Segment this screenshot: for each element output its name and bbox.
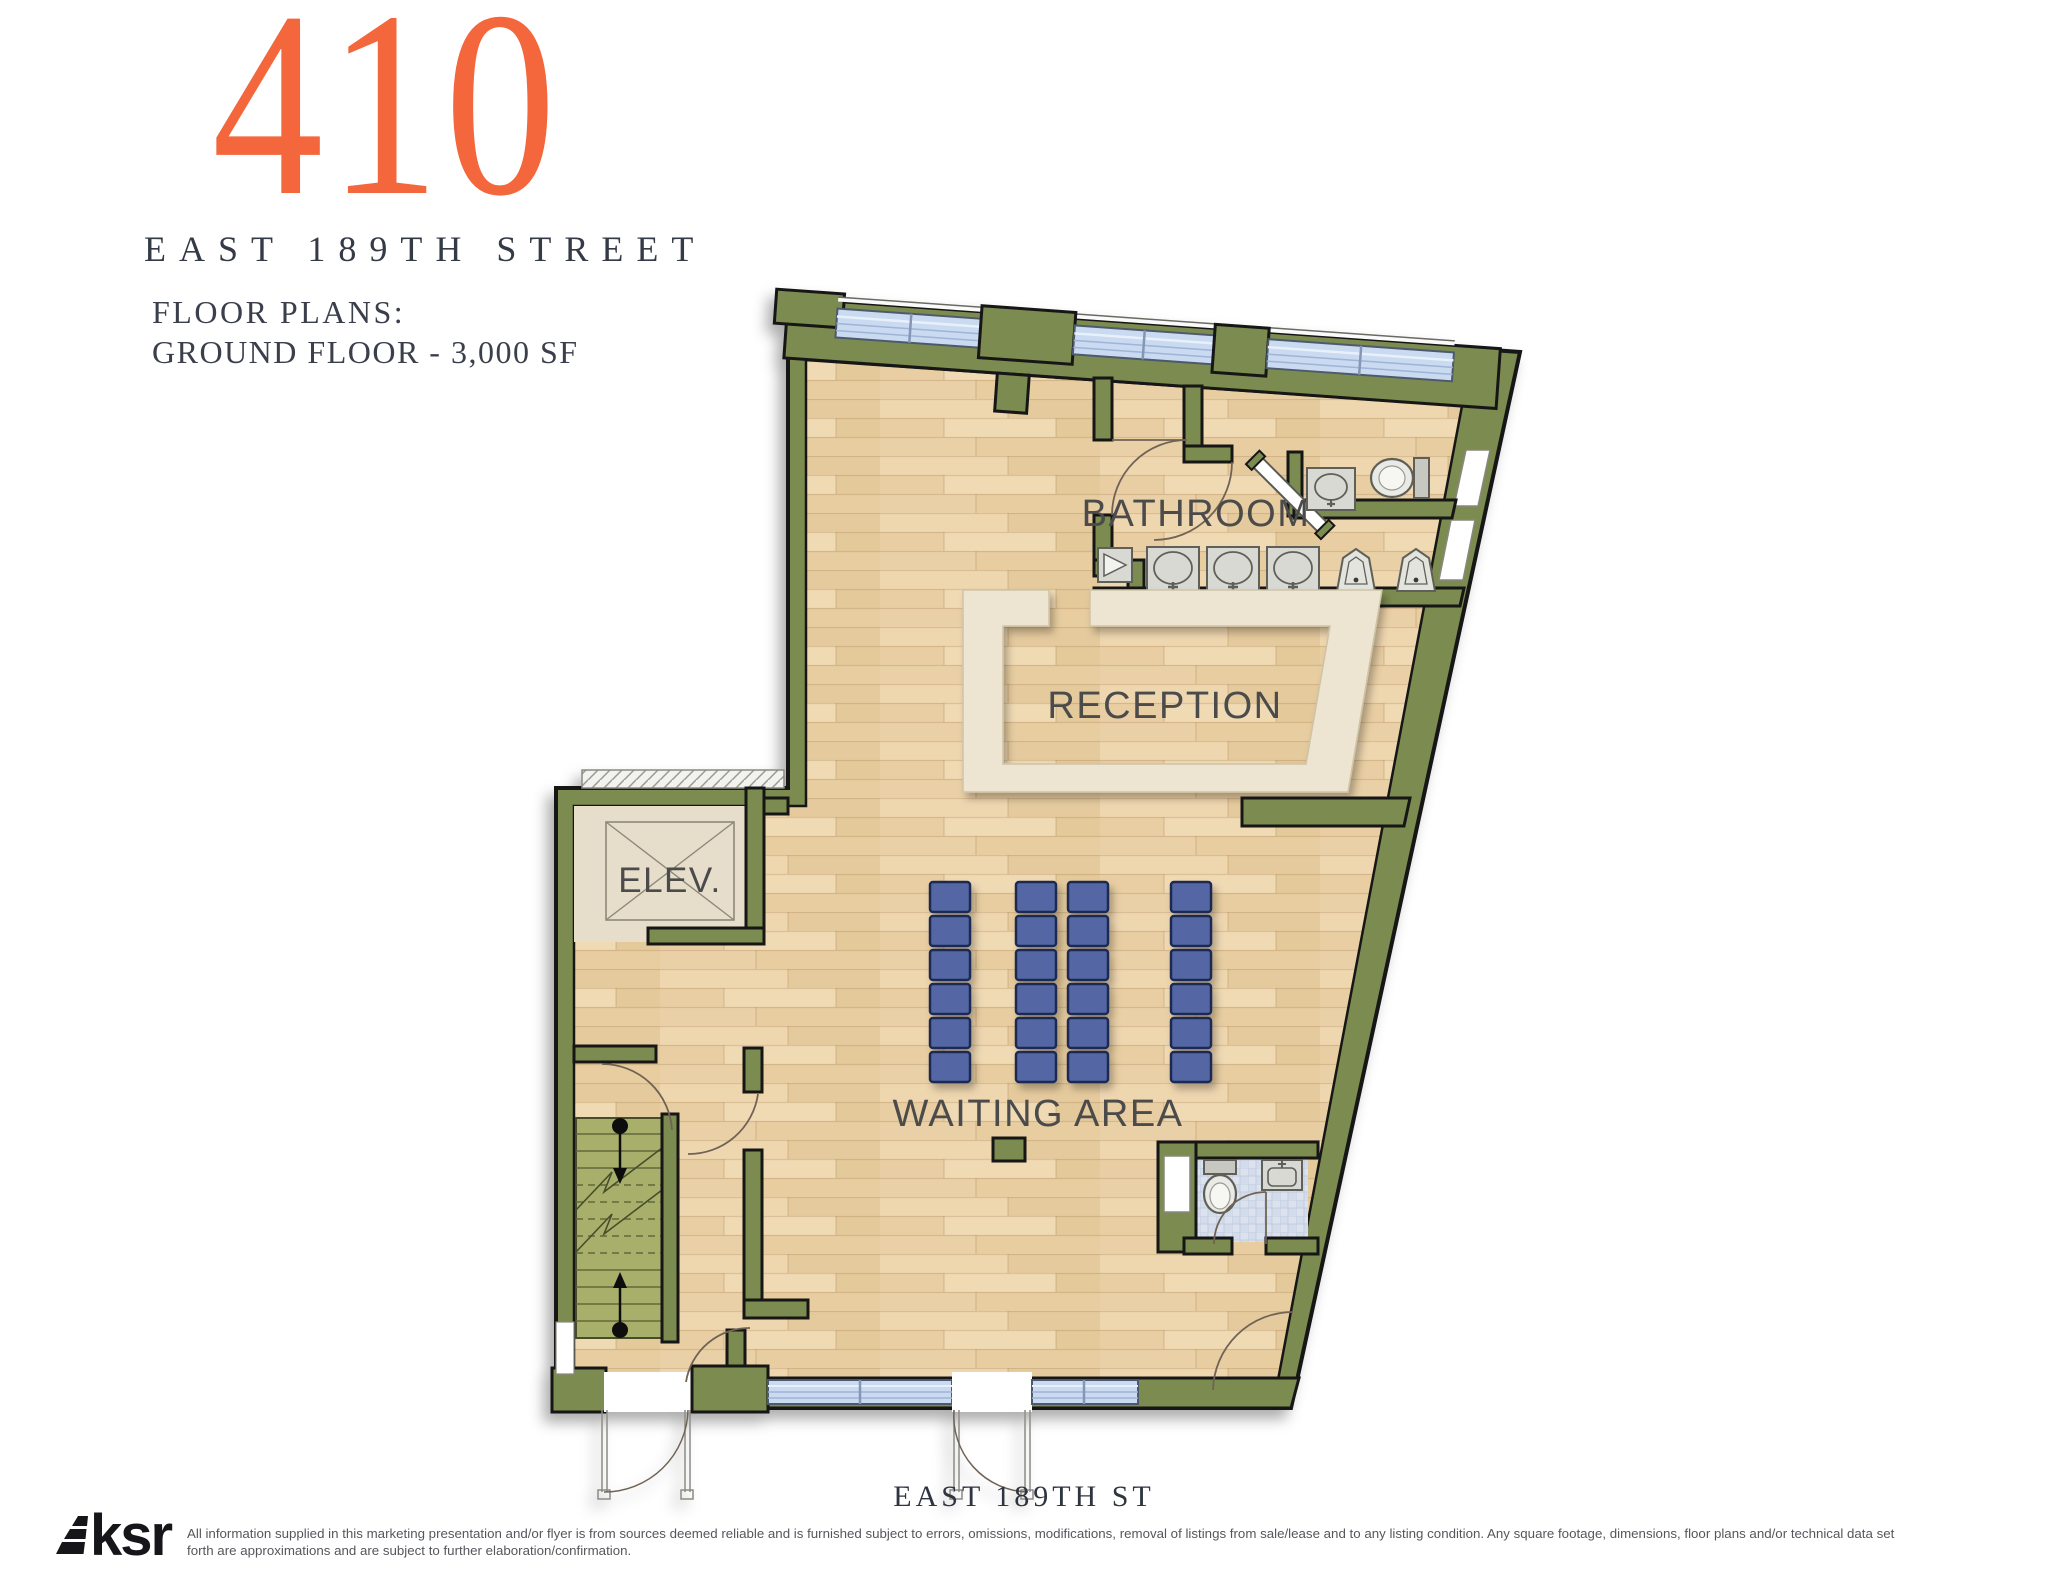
floor-plan-drawing: BATHROOM RECEPTION ELEV. WAITING AREA EA… [0,0,2048,1583]
waiting-area-label: WAITING AREA [892,1093,1183,1135]
flyer-page: 410 EAST 189TH STREET FLOOR PLANS: GROUN… [0,0,2048,1583]
disclaimer-line-2: forth are approximations and are subject… [187,1543,2002,1560]
sink-icon [1262,1160,1302,1190]
wall-niche [1164,1156,1190,1212]
street-label: EAST 189TH ST [893,1480,1154,1513]
building: BATHROOM RECEPTION ELEV. WAITING AREA [552,289,1520,1499]
column [993,1138,1025,1161]
disclaimer-line-1: All information supplied in this marketi… [187,1526,2002,1543]
entry-door-gap [952,1372,1032,1412]
ksr-logo-text: ksr [90,1506,173,1568]
window-strip-bottom-2 [1032,1380,1138,1404]
stairs [576,1114,678,1342]
corner-pier [774,289,844,328]
entry-door-gap [604,1372,692,1412]
fountain-icon [1098,548,1132,582]
sink-icon [1267,547,1319,593]
bathroom-label: BATHROOM [1082,493,1311,535]
window-pier [978,306,1075,365]
window-strip-bottom-1 [768,1380,952,1404]
sink-icon [1207,547,1259,593]
ksr-logo: ksr [56,1506,191,1575]
mid-wall [1242,798,1410,826]
sink-icon [1307,468,1355,510]
side-window-slot [556,1322,574,1374]
small-bathroom [1158,1142,1318,1254]
reception-label: RECEPTION [1047,685,1282,727]
disclaimer: All information supplied in this marketi… [187,1526,2002,1559]
sink-icon [1147,547,1199,593]
elevator-label: ELEV. [618,861,722,900]
window-pier [1212,324,1269,376]
toilet-icon [1371,458,1429,498]
interior-column [995,373,1030,413]
ksr-logo-icon: ksr [56,1506,191,1570]
